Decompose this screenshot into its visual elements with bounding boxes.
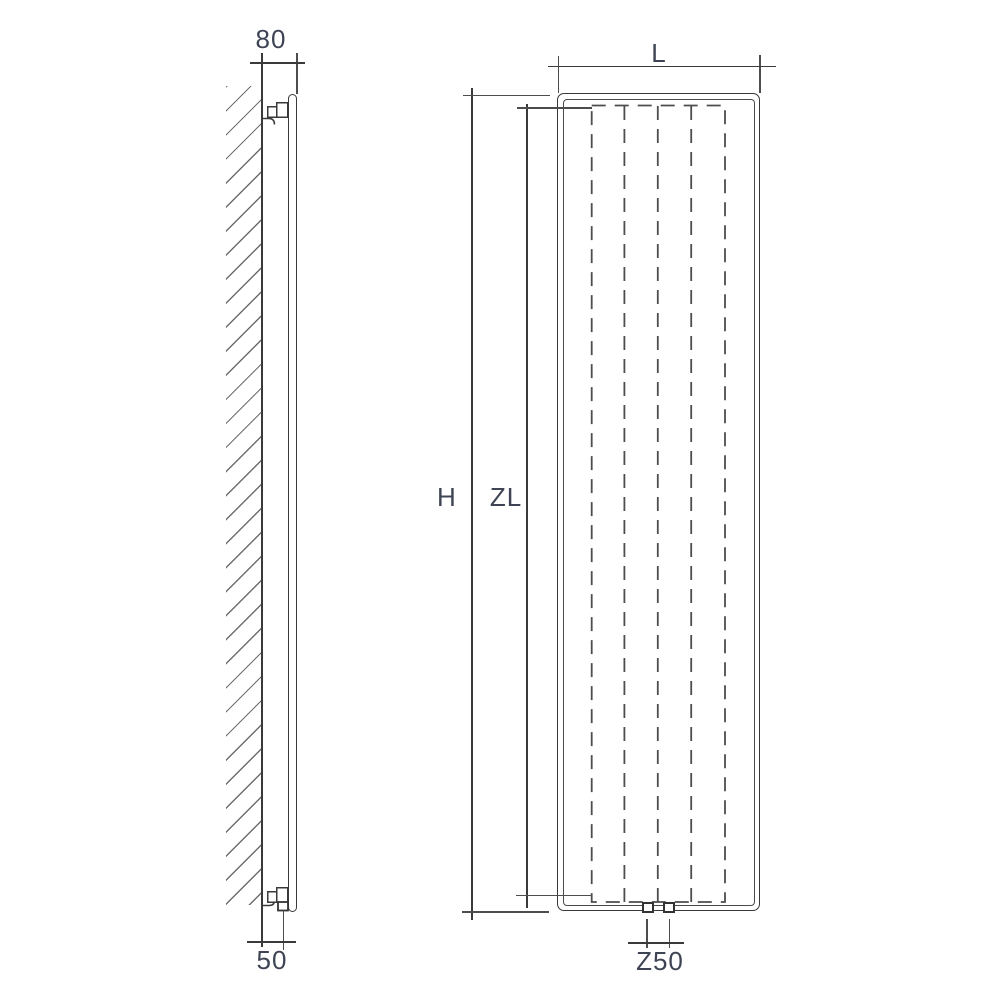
dim-Z50-label: Z50: [632, 948, 688, 974]
dim-ZL-label: ZL: [488, 484, 524, 510]
dim-ZL-line: [526, 104, 528, 908]
radiator-side-profile: [288, 94, 297, 912]
dim-H-ext-top: [463, 95, 550, 97]
wall-hatch: [226, 86, 262, 905]
top-wall-bracket: [260, 101, 290, 128]
dim-Z50-ext-left: [646, 919, 648, 948]
dim-H-ext-bottom: [462, 911, 549, 913]
wall-face-line: [261, 53, 263, 947]
dim-50-ext-right: [283, 910, 285, 950]
dim-50-line: [247, 941, 296, 943]
dim-Z50-ext-right: [669, 919, 671, 948]
pipe-connection-left: [642, 902, 654, 913]
dim-ZL-ext-bottom: [516, 895, 592, 897]
dim-ZL-ext-top: [517, 107, 592, 109]
convector-fins-dashed: [557, 93, 760, 911]
dim-80-line: [250, 62, 305, 64]
dim-L-ext-left: [558, 56, 560, 93]
pipe-connection-right: [663, 902, 675, 913]
dim-L-label: L: [634, 40, 684, 66]
dim-80-label: 80: [246, 26, 296, 52]
dim-50-label: 50: [247, 947, 297, 973]
bottom-wall-bracket: [260, 884, 290, 914]
drawing-canvas: 80 50 L H ZL: [0, 0, 1000, 1000]
dim-80-ext-right: [296, 53, 298, 94]
dim-H-label: H: [437, 484, 473, 510]
dim-Z50-line: [628, 942, 684, 944]
dim-L-ext-right: [759, 55, 761, 93]
